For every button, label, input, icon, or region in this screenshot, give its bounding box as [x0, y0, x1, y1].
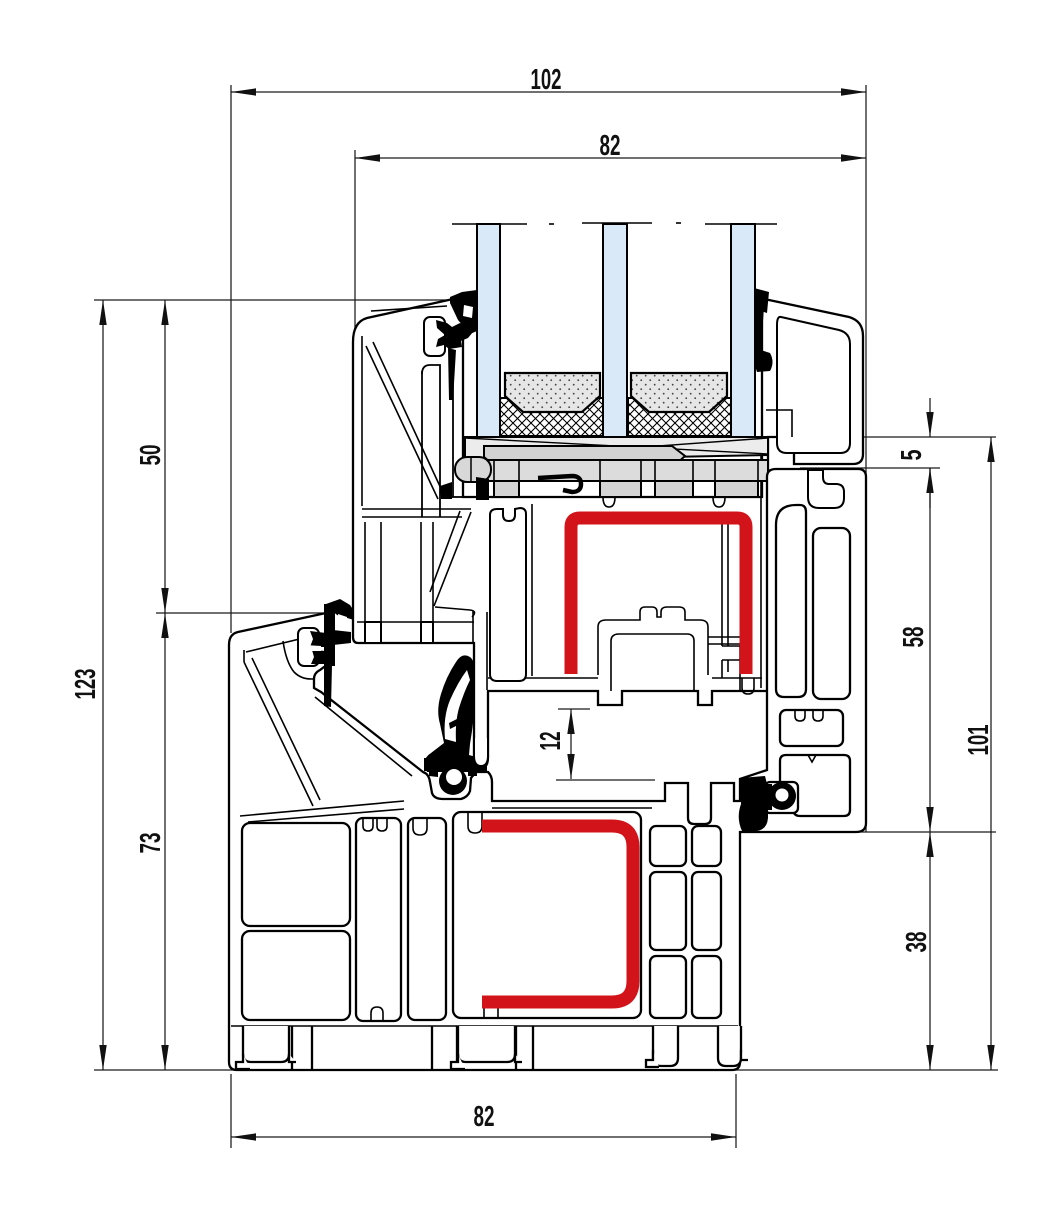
svg-text:123: 123 [70, 669, 102, 700]
svg-text:38: 38 [901, 932, 933, 953]
svg-text:101: 101 [963, 724, 995, 755]
svg-text:5: 5 [896, 449, 928, 460]
svg-text:50: 50 [135, 445, 167, 466]
svg-text:102: 102 [531, 64, 562, 96]
svg-text:73: 73 [135, 833, 167, 854]
svg-text:58: 58 [898, 627, 930, 648]
svg-text:82: 82 [600, 130, 621, 162]
svg-text:12: 12 [535, 732, 567, 751]
svg-text:82: 82 [474, 1101, 495, 1133]
